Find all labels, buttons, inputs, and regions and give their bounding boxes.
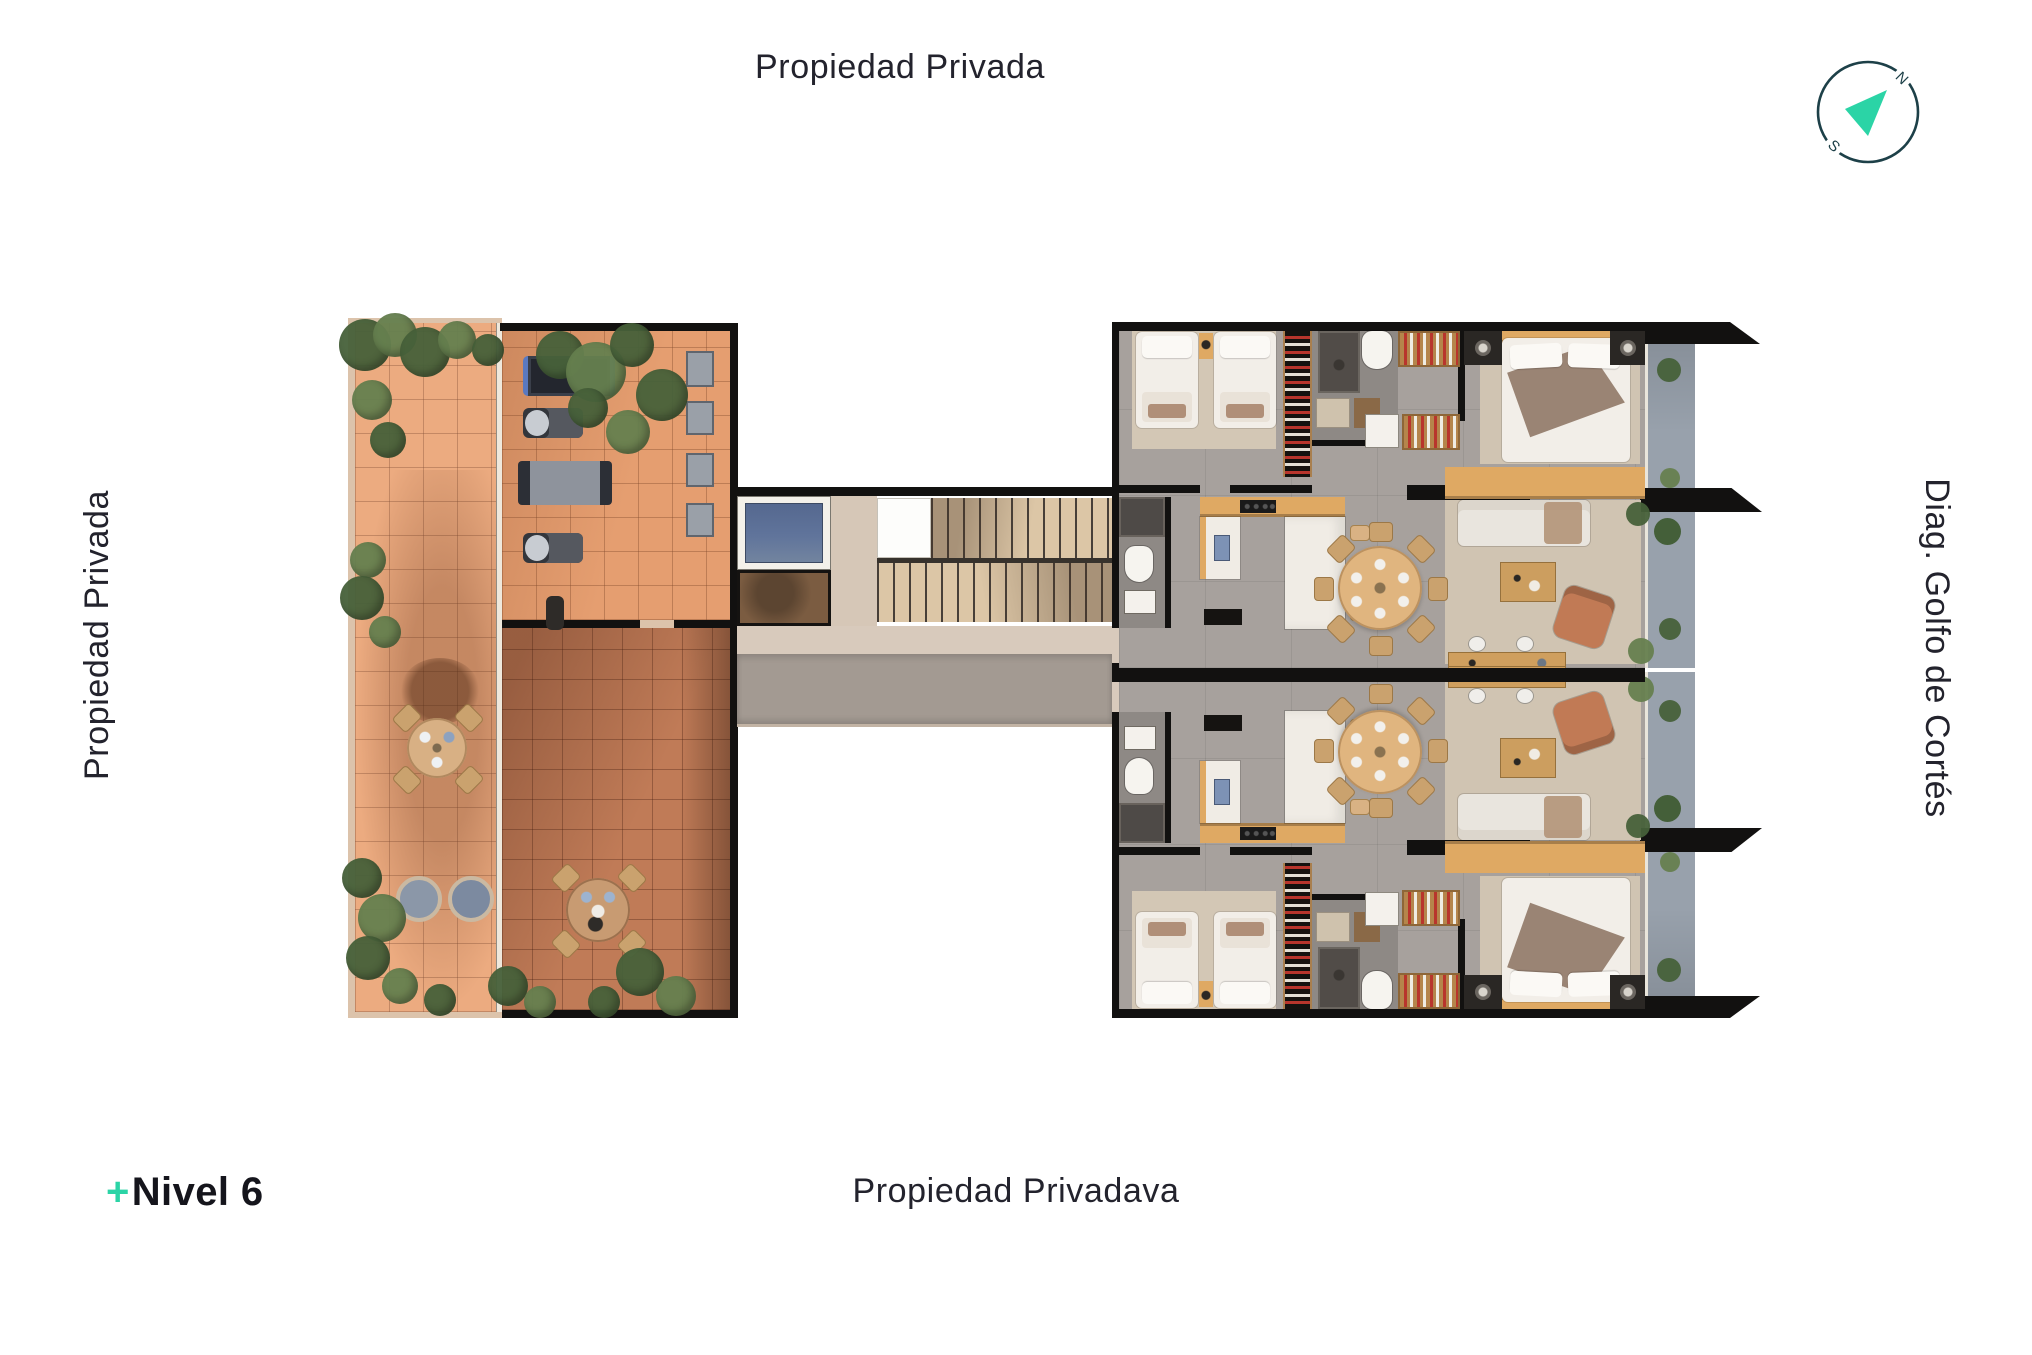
bar-stool xyxy=(1350,799,1370,815)
kitchen-cabinet-dark xyxy=(1204,715,1242,731)
table-chair xyxy=(1428,739,1448,763)
toilet xyxy=(1362,971,1392,1009)
speaker xyxy=(1464,975,1502,1009)
kitchen-sink xyxy=(1214,535,1230,561)
toilet xyxy=(1362,331,1392,369)
bed-accent xyxy=(1226,404,1264,418)
entry-shower xyxy=(1119,497,1165,537)
table-chair xyxy=(1369,684,1393,704)
stove xyxy=(1240,500,1276,513)
bed-accent xyxy=(1226,922,1264,936)
hall-sink xyxy=(1365,414,1399,448)
bed-pillow xyxy=(1509,343,1562,370)
speaker xyxy=(1610,975,1645,1009)
kitchen-sink xyxy=(1214,779,1230,805)
living-plant xyxy=(1626,814,1650,838)
table-chair xyxy=(1428,577,1448,601)
console xyxy=(1445,467,1645,499)
balcony-wall-spike-mid xyxy=(1640,488,1762,512)
bath-vanity xyxy=(1316,398,1350,428)
apartment-unit-b xyxy=(1112,663,1760,1018)
table-chair xyxy=(1369,636,1393,656)
bed-accent xyxy=(1148,922,1186,936)
wall-under-twin-b xyxy=(1230,485,1312,493)
twin-bed xyxy=(1214,912,1276,1008)
floor-plan xyxy=(0,0,2032,1355)
wardrobe xyxy=(1283,863,1312,1009)
sofa-throw xyxy=(1544,502,1582,544)
walkin-closet xyxy=(1398,331,1460,367)
balcony-plant xyxy=(1660,852,1680,872)
nightstand xyxy=(1199,333,1213,359)
right-block xyxy=(0,0,2032,1355)
table-chair xyxy=(1369,522,1393,542)
shower xyxy=(1318,947,1360,1009)
desk-chair xyxy=(1468,636,1486,652)
wall-under-twin-a xyxy=(1112,485,1200,493)
balcony-wall-spike-mid xyxy=(1640,828,1762,852)
balcony-plant xyxy=(1654,795,1681,822)
wall-entrybath-right xyxy=(1165,712,1171,843)
speaker xyxy=(1610,331,1645,365)
table-chair xyxy=(1314,577,1334,601)
wall-bath-bottom xyxy=(1312,440,1372,446)
balcony-plant xyxy=(1659,618,1681,640)
walkin-closet xyxy=(1398,973,1460,1009)
closet-mid xyxy=(1402,414,1460,450)
unit-wall-top xyxy=(1112,1009,1645,1018)
bed-accent xyxy=(1148,404,1186,418)
balcony-plant xyxy=(1657,358,1681,382)
twin-bed xyxy=(1214,332,1276,428)
apartment-unit-a xyxy=(1112,322,1760,677)
entry-shower xyxy=(1119,803,1165,843)
bed-pillow xyxy=(1142,982,1192,1004)
sofa-throw xyxy=(1544,796,1582,838)
wall-under-twin-b xyxy=(1230,847,1312,855)
hall-sink xyxy=(1365,892,1399,926)
coffee-table xyxy=(1500,562,1556,602)
balcony-plant xyxy=(1659,700,1681,722)
dining-table xyxy=(1338,546,1422,630)
desk-chair xyxy=(1468,688,1486,704)
balcony-wall-spike-top xyxy=(1640,322,1760,344)
kitchen-cabinet-dark xyxy=(1204,609,1242,625)
living-plant xyxy=(1626,502,1650,526)
bed-pillow xyxy=(1220,982,1270,1004)
balcony-plant xyxy=(1660,468,1680,488)
bar-stool xyxy=(1350,525,1370,541)
dining-table xyxy=(1338,710,1422,794)
coffee-table xyxy=(1500,738,1556,778)
shower xyxy=(1318,331,1360,393)
bed-pillow xyxy=(1509,971,1562,998)
living-plant xyxy=(1628,638,1654,664)
entry-toilet xyxy=(1125,758,1153,794)
entry-toilet xyxy=(1125,546,1153,582)
bed-pillow xyxy=(1220,336,1270,358)
kitchen-island xyxy=(1285,517,1345,629)
stove xyxy=(1240,827,1276,840)
twin-bed xyxy=(1136,912,1198,1008)
unit-wall-left xyxy=(1112,322,1119,628)
unit-divider-wall xyxy=(1112,668,1645,682)
table-chair xyxy=(1314,739,1334,763)
unit-entry-door xyxy=(1112,628,1119,668)
entry-sink xyxy=(1124,726,1156,750)
wall-under-twin-a xyxy=(1112,847,1200,855)
balcony-plant xyxy=(1657,958,1681,982)
bed-pillow xyxy=(1142,336,1192,358)
floor-plan-page: { "labels": { "top": "Propiedad Privada"… xyxy=(0,0,2032,1355)
nightstand xyxy=(1199,981,1213,1007)
console xyxy=(1445,841,1645,873)
entry-sink xyxy=(1124,590,1156,614)
table-chair xyxy=(1369,798,1393,818)
balcony-wall-spike-top xyxy=(1640,996,1760,1018)
closet-mid xyxy=(1402,890,1460,926)
twin-bed xyxy=(1136,332,1198,428)
unit-wall-left xyxy=(1112,712,1119,1018)
bath-vanity xyxy=(1316,912,1350,942)
desk-chair xyxy=(1516,636,1534,652)
balcony-plant xyxy=(1654,518,1681,545)
kitchen-island xyxy=(1285,711,1345,823)
desk-chair xyxy=(1516,688,1534,704)
unit-wall-top xyxy=(1112,322,1645,331)
wardrobe xyxy=(1283,331,1312,477)
speaker xyxy=(1464,331,1502,365)
wall-entrybath-right xyxy=(1165,497,1171,628)
